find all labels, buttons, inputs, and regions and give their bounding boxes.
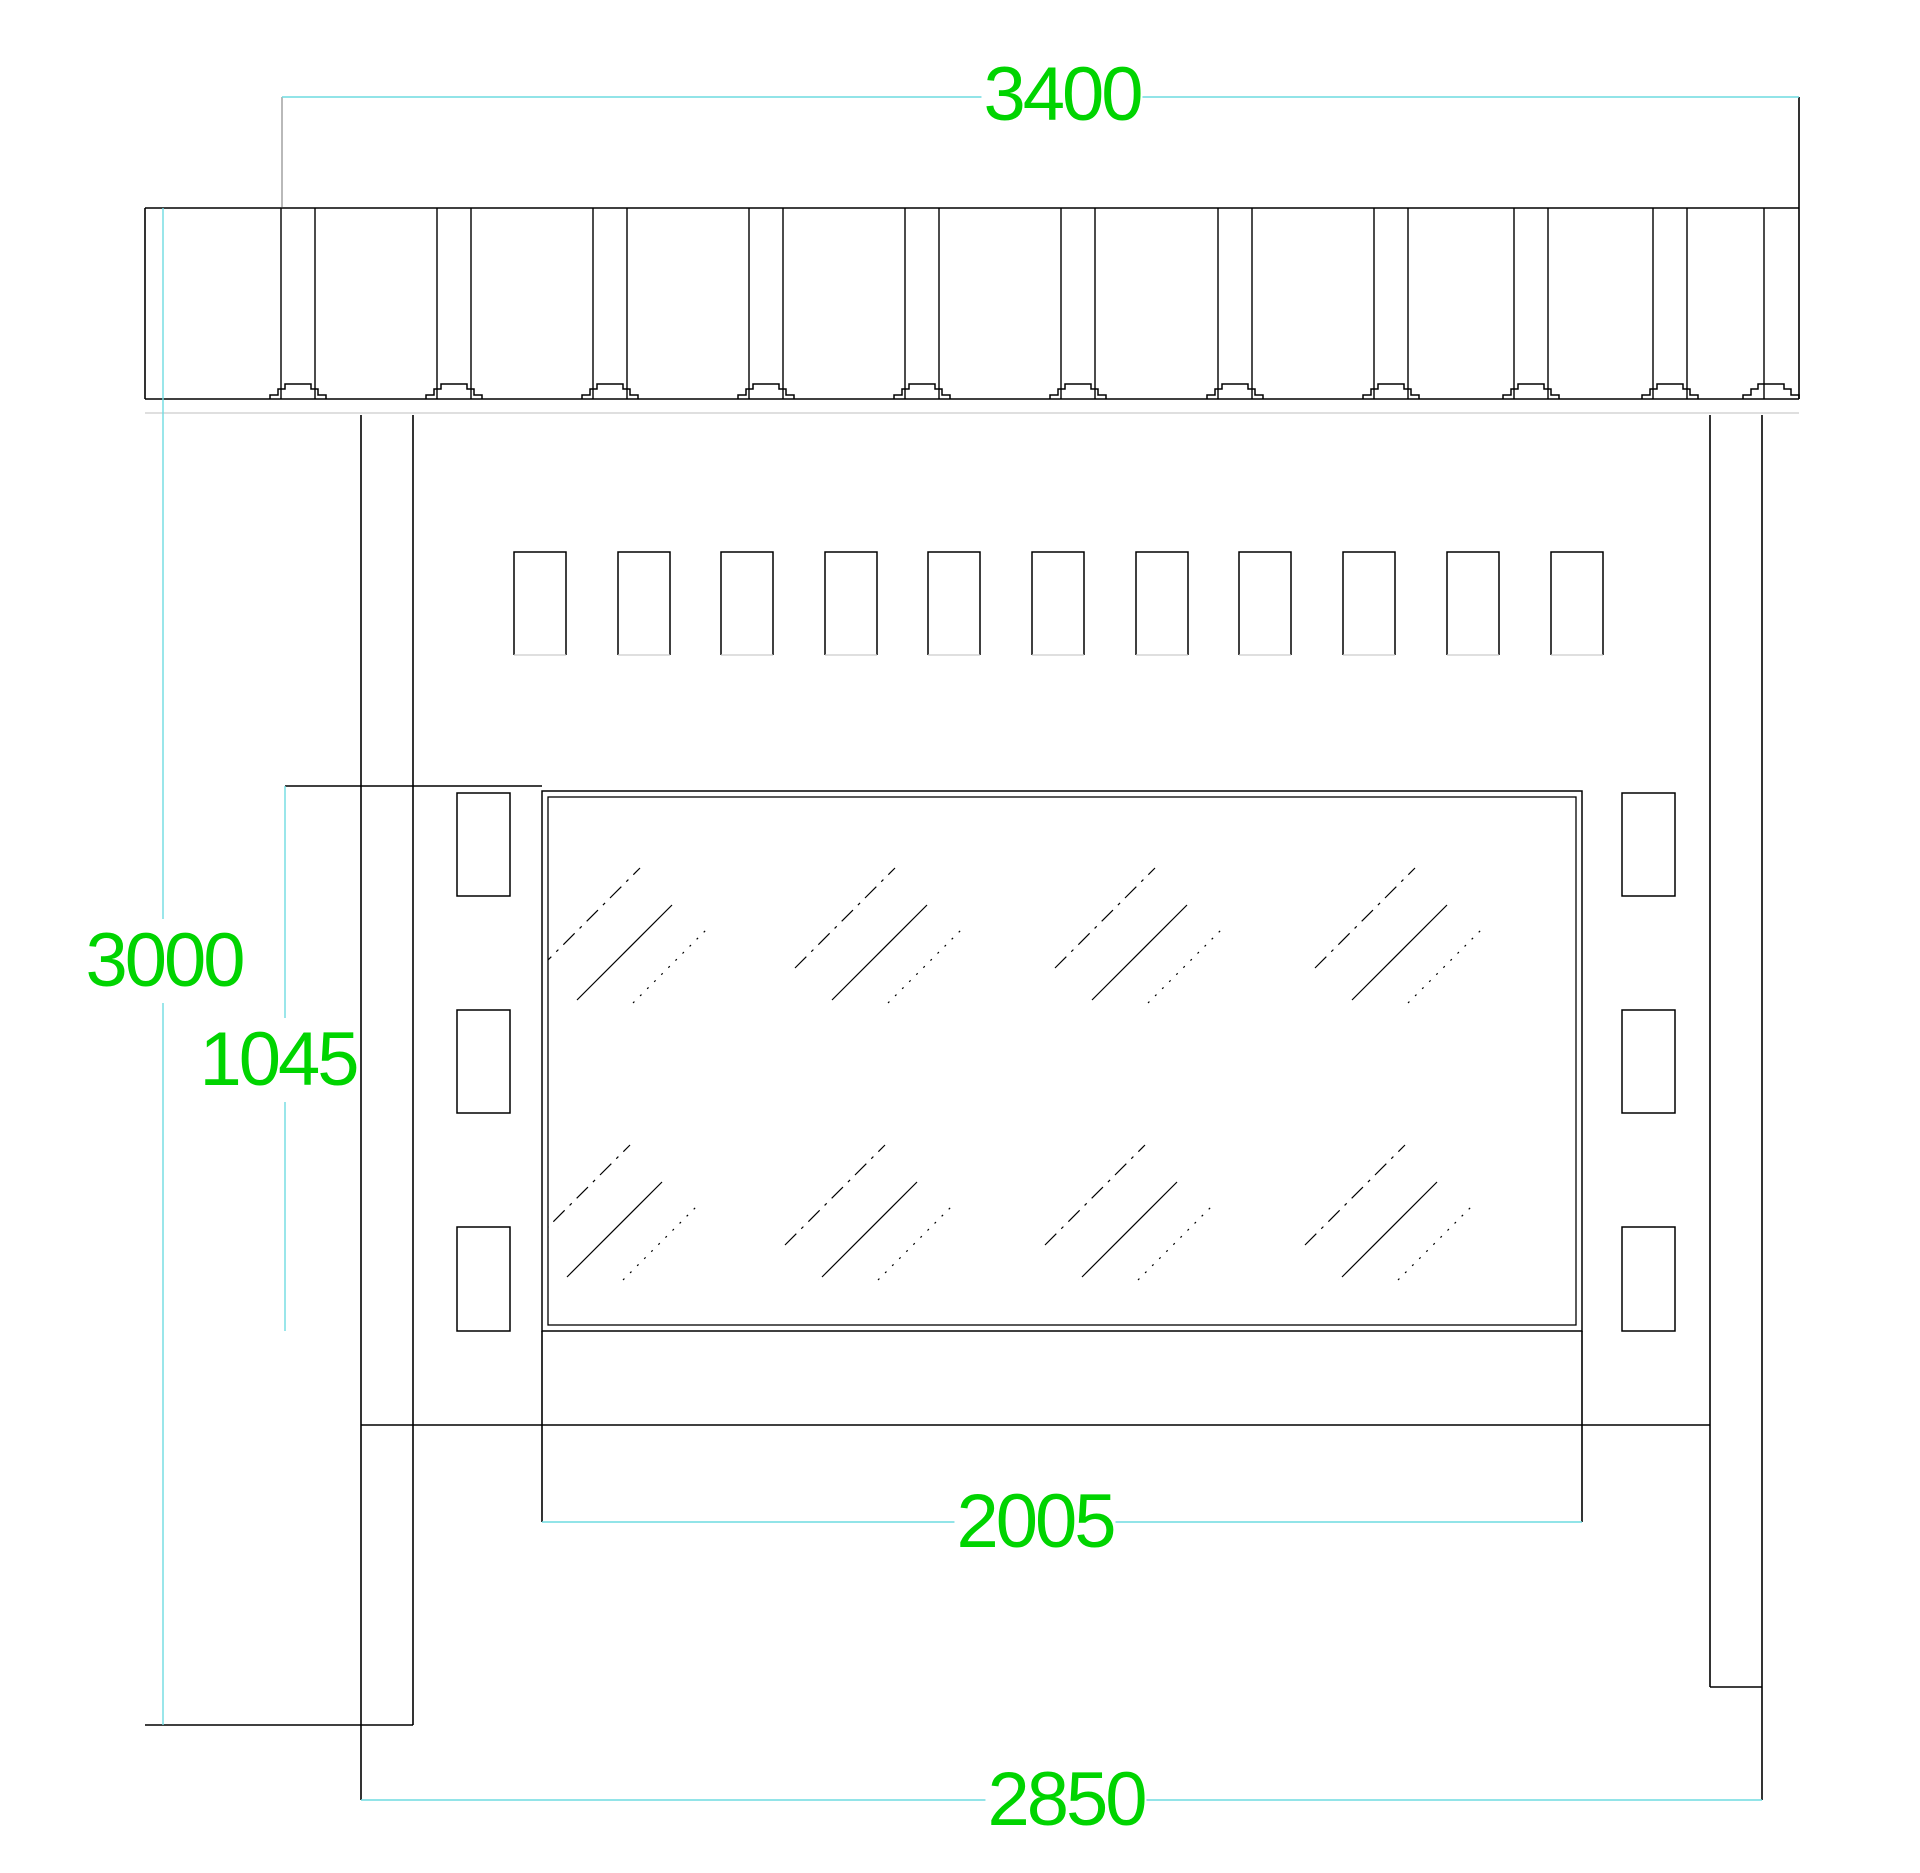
glass-panel-inner-frame [548,797,1576,1325]
cad-elevation-drawing: 3400 3000 1045 2005 2850 [0,0,1920,1873]
roof-batten [618,552,670,655]
glass-hatch-stroke [1138,1203,1215,1280]
roof-joint-cap [1050,384,1106,399]
roof-batten [514,552,566,655]
roof-batten [1239,552,1291,655]
roof-batten [1136,552,1188,655]
glass-hatch-stroke [1398,1203,1475,1280]
glass-bracket [457,1227,510,1331]
roof-joint-cap [426,384,482,399]
glass-hatch-group [530,868,1485,1280]
dim-label-3400: 3400 [981,53,1142,137]
roof-joint-cap [1503,384,1559,399]
glass-hatch-stroke [785,1145,885,1245]
glass-hatch-stroke [888,926,965,1003]
dim-label-2850: 2850 [985,1758,1146,1842]
glass-hatch-stroke [1305,1145,1405,1245]
glass-hatch-stroke [1408,926,1485,1003]
glass-hatch-stroke [1082,1182,1177,1277]
glass-bracket [1622,1227,1675,1331]
roof-batten [1551,552,1603,655]
glass-hatch-stroke [832,905,927,1000]
glass-hatch-stroke [795,868,895,968]
glass-hatch-stroke [1092,905,1187,1000]
glass-hatch-stroke [577,905,672,1000]
dim-label-3000: 3000 [83,919,244,1003]
roof-batten [928,552,980,655]
dim-label-1045: 1045 [197,1018,358,1102]
glass-hatch-stroke [567,1182,662,1277]
glass-hatch-stroke [1045,1145,1145,1245]
glass-hatch-stroke [540,868,640,968]
roof-batten [1447,552,1499,655]
roof-batten [1032,552,1084,655]
roof-joint-cap [270,384,326,399]
drawing-canvas [0,0,1920,1873]
roof-joint-cap [894,384,950,399]
dim-label-2005: 2005 [954,1480,1115,1564]
glass-hatch-stroke [1315,868,1415,968]
roof-batten [825,552,877,655]
glass-panel-outer-frame [542,791,1582,1331]
glass-bracket [1622,1010,1675,1113]
roof-joint-cap [1363,384,1419,399]
glass-hatch-stroke [822,1182,917,1277]
glass-hatch-stroke [530,1145,630,1245]
roof-joint-cap [1642,384,1698,399]
glass-hatch-stroke [1148,926,1225,1003]
glass-hatch-stroke [1342,1182,1437,1277]
roof-joint-cap [1743,384,1799,399]
glass-hatch-stroke [633,926,710,1003]
glass-hatch-stroke [878,1203,955,1280]
glass-hatch-stroke [623,1203,700,1280]
roof-batten [721,552,773,655]
roof-joint-cap [738,384,794,399]
roof-joint-cap [1207,384,1263,399]
glass-hatch-stroke [1352,905,1447,1000]
glass-bracket [457,1010,510,1113]
glass-bracket [457,793,510,896]
glass-bracket [1622,793,1675,896]
roof-batten [1343,552,1395,655]
glass-hatch-stroke [1055,868,1155,968]
roof-joint-cap [582,384,638,399]
